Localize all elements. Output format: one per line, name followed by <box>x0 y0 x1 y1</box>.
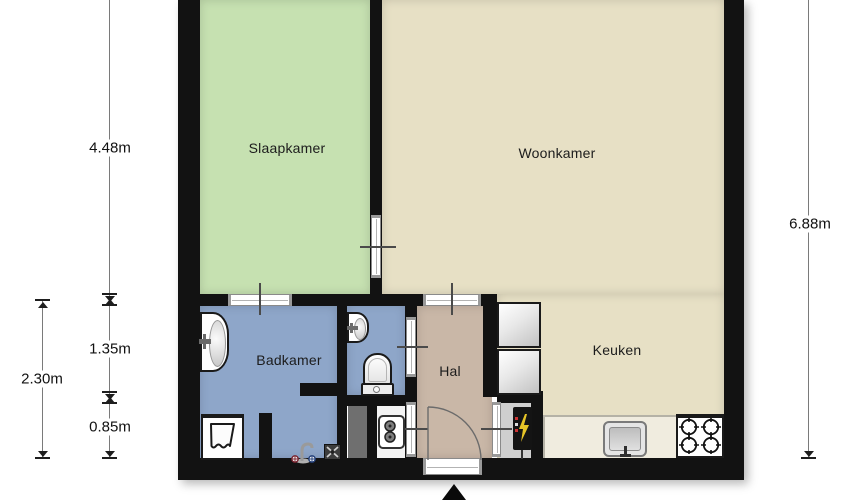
tall-cabinet-icon <box>497 349 541 395</box>
dim-tick <box>102 402 117 404</box>
wc-sink-icon <box>347 312 369 343</box>
dim-tick <box>801 457 816 459</box>
stove-icon <box>676 414 724 458</box>
label-badkamer: Badkamer <box>256 352 321 368</box>
dim-tick <box>102 457 117 459</box>
electrical-cable <box>521 450 523 459</box>
duct-shaft <box>348 406 367 458</box>
wall-left <box>178 0 200 480</box>
wall-right <box>724 0 744 480</box>
door-line-wc-hal <box>397 346 428 348</box>
wall-bath-wc <box>337 294 347 458</box>
toilet-icon <box>363 353 392 386</box>
dim-label-right-total: 6.88m <box>786 216 834 233</box>
dim-arrow-up <box>38 302 48 308</box>
dim-label-bath-total: 2.30m <box>18 371 66 388</box>
dim-tick <box>35 457 50 459</box>
wall-stub-bath-niche <box>300 383 347 396</box>
wall-below-wc <box>337 395 417 406</box>
label-hal: Hal <box>439 363 461 379</box>
door-line-bedroom-living <box>360 246 396 248</box>
door-line-bedroom-bathroom <box>259 283 261 315</box>
wall-shaft-boiler <box>367 406 377 458</box>
door-swing-icon <box>425 404 483 461</box>
kitchen-sink-icon <box>603 421 647 457</box>
wall-metercloset-right <box>531 397 543 458</box>
wall-hal-keuken <box>483 294 497 397</box>
tall-cabinet-icon <box>497 302 541 348</box>
bathroom-sink-icon <box>200 312 229 372</box>
label-woonkamer: Woonkamer <box>518 145 595 161</box>
wall-stub-bath-divider <box>259 413 272 458</box>
dim-label-bedroom: 4.48m <box>86 140 134 157</box>
label-keuken: Keuken <box>593 342 642 358</box>
floorplan-canvas: Slaapkamer Woonkamer Badkamer Hal Keuken… <box>0 0 850 500</box>
dim-label-bath-lower: 0.85m <box>86 419 134 436</box>
dim-tick <box>102 391 117 393</box>
toilet-flush-button <box>373 386 380 393</box>
tap-icon <box>289 438 319 464</box>
boiler-icon <box>378 415 405 449</box>
door-line-hal-living <box>451 283 453 315</box>
door-line-metercloset-hal <box>481 428 512 430</box>
dim-tick <box>102 293 117 295</box>
dim-tick <box>102 304 117 306</box>
label-slaapkamer: Slaapkamer <box>249 140 326 156</box>
dim-label-bath-upper: 1.35m <box>86 341 134 358</box>
dim-tick <box>35 299 50 301</box>
electrical-panel-icon <box>513 407 532 450</box>
washing-machine-icon <box>201 414 244 460</box>
floor-drain-icon <box>324 444 341 460</box>
entrance-arrow-icon <box>442 484 466 500</box>
